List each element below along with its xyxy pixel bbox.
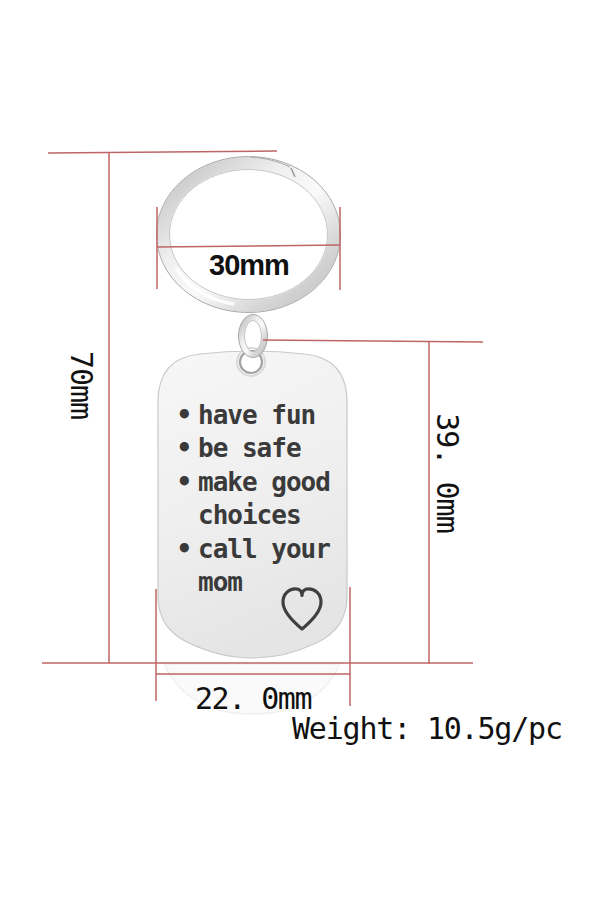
dimension-total-height-label: 70mm — [66, 325, 96, 445]
engraved-text: be safe — [198, 433, 301, 463]
dim-line-30 — [157, 245, 340, 247]
bullet-icon: • — [176, 467, 198, 497]
dimension-ring-width-label: 30mm — [157, 248, 341, 282]
dimension-tag-width-label: 22. 0mm — [156, 684, 350, 714]
engraved-line: •make good — [176, 465, 330, 499]
engraved-text: choices — [198, 500, 301, 530]
engraved-text: have fun — [198, 400, 315, 430]
bullet-icon: • — [176, 534, 198, 564]
bullet-icon: • — [176, 400, 198, 430]
engraved-line: •call your — [176, 532, 330, 566]
engraved-text: mom — [198, 567, 242, 597]
tag-engraving: •have fun •be safe •make good choices •c… — [176, 398, 330, 599]
bullet-icon: • — [176, 433, 198, 463]
engraved-line: •have fun — [176, 398, 330, 432]
engraved-text: make good — [198, 467, 330, 497]
dimension-tag-height-label: 39. 0mm — [432, 393, 462, 553]
engraved-text: call your — [198, 534, 330, 564]
dim-line-39-top-tick — [263, 340, 483, 342]
weight-label: Weight: 10.5g/pc — [292, 712, 562, 746]
product-photo: •have fun •be safe •make good choices •c… — [0, 0, 600, 900]
key-ring — [157, 157, 341, 313]
engraved-line: •be safe — [176, 432, 330, 466]
dim-line-top-tick — [48, 151, 277, 153]
engraved-line: choices — [176, 499, 330, 533]
engraved-line: mom — [176, 566, 330, 600]
